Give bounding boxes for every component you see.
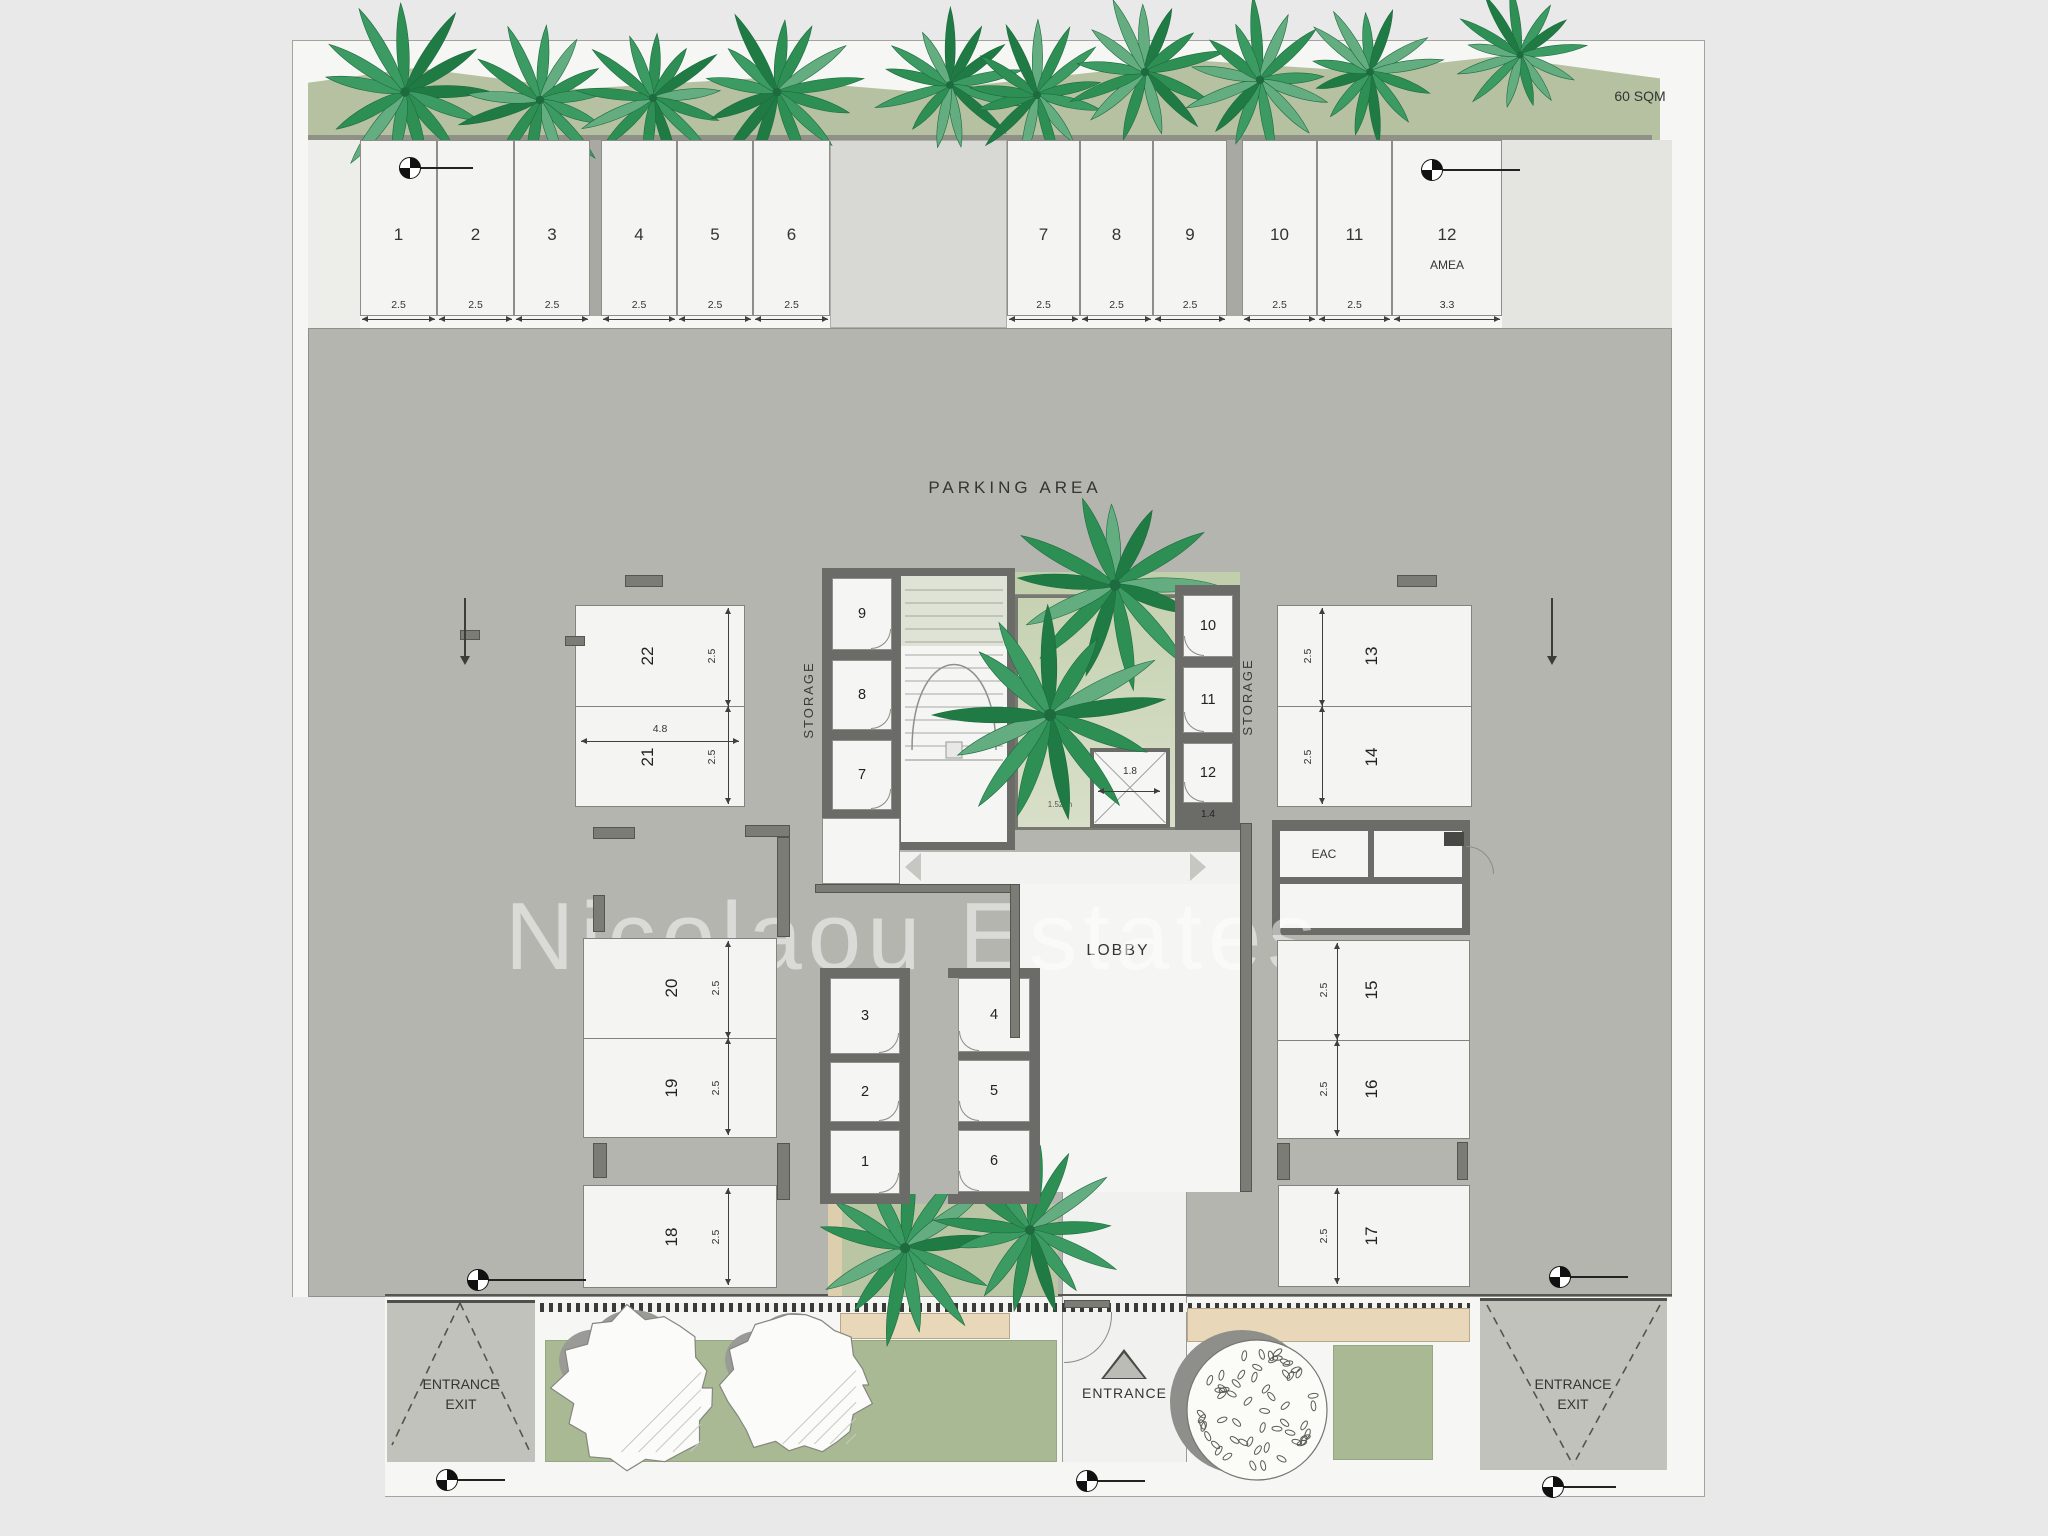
dimension-arrow-icon bbox=[725, 1279, 731, 1285]
parking-stall-3: 32.5 bbox=[514, 140, 590, 316]
dimension-arrow-icon bbox=[439, 316, 445, 322]
storage-dim: 1.4 bbox=[1183, 807, 1233, 821]
dimension-arrow-icon bbox=[1334, 1040, 1340, 1046]
elevator-dim: 1.8 bbox=[1110, 764, 1150, 778]
survey-marker-icon bbox=[399, 157, 421, 179]
stall-dim: 2.5 bbox=[678, 299, 752, 311]
dimension-line bbox=[581, 741, 739, 742]
parking-space-21: 21 bbox=[635, 744, 661, 770]
parking-stall-12: 12AMEA3.3 bbox=[1392, 140, 1502, 316]
stall-dim: 2.5 bbox=[602, 299, 676, 311]
stall-number: 12 bbox=[1393, 225, 1501, 245]
entrance-exit-left-label: ENTRANCE EXIT bbox=[392, 1372, 530, 1416]
dimension-arrow-icon bbox=[1319, 316, 1325, 322]
dimension-arrow-icon bbox=[1334, 943, 1340, 949]
tan-paving bbox=[840, 1313, 1010, 1339]
stall-dim: 2.5 bbox=[1154, 299, 1226, 311]
garden-bed-tan bbox=[828, 1204, 842, 1296]
parking-stall-5: 52.5 bbox=[677, 140, 753, 316]
dimension-arrow-icon bbox=[1145, 316, 1151, 322]
direction-arrow-icon bbox=[1547, 656, 1557, 665]
stall-row-pad bbox=[308, 140, 360, 328]
storage-number: 9 bbox=[832, 605, 892, 623]
dimension-arrow-icon bbox=[581, 738, 587, 744]
parking-stall-9: 92.5 bbox=[1153, 140, 1227, 316]
dimension-line bbox=[439, 319, 512, 320]
parking-space-14: 14 bbox=[1359, 744, 1385, 770]
parking-stall-6: 62.5 bbox=[753, 140, 830, 316]
space-dim: 2.5 bbox=[1313, 1223, 1335, 1249]
survey-marker-icon bbox=[1421, 159, 1443, 181]
dimension-line bbox=[1337, 1188, 1338, 1284]
survey-marker-icon bbox=[1076, 1470, 1098, 1492]
dimension-arrow-icon bbox=[725, 1038, 731, 1044]
dimension-arrow-icon bbox=[506, 316, 512, 322]
parking-space-18: 18 bbox=[659, 1224, 685, 1250]
survey-marker-leader bbox=[455, 1479, 505, 1481]
dimension-arrow-icon bbox=[725, 798, 731, 804]
space-dim: 2.5 bbox=[1313, 1076, 1335, 1102]
dimension-arrow-icon bbox=[1384, 316, 1390, 322]
area-label: 60 SQM bbox=[1578, 86, 1702, 106]
storage-number: 12 bbox=[1183, 764, 1233, 782]
entrance-label: ENTRANCE bbox=[1062, 1384, 1187, 1402]
stall-dim: 2.5 bbox=[361, 299, 436, 311]
eac-room: EAC bbox=[1280, 831, 1368, 877]
stall-number: 2 bbox=[438, 225, 513, 245]
wall-segment bbox=[1397, 575, 1437, 587]
storage-number: 3 bbox=[830, 1007, 900, 1025]
wall-segment bbox=[1240, 823, 1252, 1192]
stall-dim: 3.3 bbox=[1393, 299, 1501, 311]
stall-dim: 2.5 bbox=[1081, 299, 1152, 311]
dimension-line bbox=[362, 319, 435, 320]
dimension-arrow-icon bbox=[1319, 798, 1325, 804]
top-right-margin bbox=[1502, 140, 1672, 328]
parking-space-22: 22 bbox=[635, 643, 661, 669]
survey-marker-icon bbox=[1542, 1476, 1564, 1498]
wall-segment bbox=[777, 837, 790, 937]
survey-marker-leader bbox=[1561, 1486, 1616, 1488]
lawn bbox=[545, 1340, 1057, 1462]
dimension-arrow-icon bbox=[1334, 1188, 1340, 1194]
dimension-arrow-icon bbox=[1309, 316, 1315, 322]
stall-number: 5 bbox=[678, 225, 752, 245]
dimension-line bbox=[603, 319, 675, 320]
dimension-arrow-icon bbox=[1319, 608, 1325, 614]
space-dim: 2.5 bbox=[701, 744, 723, 770]
stall-dim: 2.5 bbox=[754, 299, 829, 311]
dimension-arrow-icon bbox=[1334, 1278, 1340, 1284]
space-dim: 2.5 bbox=[705, 975, 727, 1001]
survey-marker-leader bbox=[418, 167, 473, 169]
tan-paving bbox=[1187, 1308, 1470, 1342]
dimension-arrow-icon bbox=[1334, 1130, 1340, 1136]
stall-number: 4 bbox=[602, 225, 676, 245]
parking-space-13: 13 bbox=[1359, 643, 1385, 669]
dimension-arrow-icon bbox=[1394, 316, 1400, 322]
dimension-arrow-icon bbox=[1082, 316, 1088, 322]
storage-corridor bbox=[910, 978, 958, 1194]
dimension-arrow-icon bbox=[603, 316, 609, 322]
space-dim: 2.5 bbox=[1313, 977, 1335, 1003]
storage-number: 11 bbox=[1183, 691, 1233, 709]
stall-number: 11 bbox=[1318, 225, 1391, 245]
direction-arrow-icon bbox=[1551, 598, 1553, 656]
parking-stall-7: 72.5 bbox=[1007, 140, 1080, 316]
storage-number: 1 bbox=[830, 1153, 900, 1171]
survey-marker-leader bbox=[1568, 1276, 1628, 1278]
corridor-arrow-left-icon bbox=[905, 853, 921, 881]
survey-marker-leader bbox=[1095, 1480, 1145, 1482]
dimension-arrow-icon bbox=[725, 1129, 731, 1135]
space-dim: 2.5 bbox=[1297, 643, 1319, 669]
stall-number: 9 bbox=[1154, 225, 1226, 245]
block-width-dim: 4.8 bbox=[600, 722, 720, 736]
dimension-line bbox=[1319, 319, 1390, 320]
block-divider bbox=[1277, 706, 1472, 707]
survey-marker-icon bbox=[436, 1469, 458, 1491]
stall-tag: AMEA bbox=[1393, 257, 1501, 273]
block-divider bbox=[583, 1038, 777, 1039]
wall-segment bbox=[745, 825, 790, 837]
dimension-arrow-icon bbox=[1244, 316, 1250, 322]
dimension-arrow-icon bbox=[725, 1188, 731, 1194]
stall-group-pier bbox=[830, 140, 1007, 328]
stall-number: 3 bbox=[515, 225, 589, 245]
dimension-arrow-icon bbox=[669, 316, 675, 322]
wall-segment bbox=[777, 1143, 790, 1200]
wall-segment bbox=[565, 636, 585, 646]
wall-segment bbox=[593, 1143, 607, 1178]
stall-number: 6 bbox=[754, 225, 829, 245]
dimension-line bbox=[679, 319, 751, 320]
survey-marker-leader bbox=[486, 1279, 586, 1281]
dimension-arrow-icon bbox=[516, 316, 522, 322]
stall-number: 10 bbox=[1243, 225, 1316, 245]
stall-group-wall bbox=[590, 140, 601, 316]
dimension-arrow-icon bbox=[755, 316, 761, 322]
space-dim: 2.5 bbox=[705, 1075, 727, 1101]
entrance-exit-right-label: ENTRANCE EXIT bbox=[1493, 1372, 1653, 1416]
vestibule bbox=[822, 818, 900, 884]
stall-dim: 2.5 bbox=[1243, 299, 1316, 311]
parking-stall-4: 42.5 bbox=[601, 140, 677, 316]
dimension-line bbox=[1394, 319, 1500, 320]
stall-dim: 2.5 bbox=[1008, 299, 1079, 311]
dimension-line bbox=[516, 319, 588, 320]
shaft-dim-label: 1.52 m bbox=[1035, 798, 1085, 810]
wall-segment bbox=[1457, 1142, 1468, 1180]
dimension-arrow-icon bbox=[733, 738, 739, 744]
storage-number: 10 bbox=[1183, 617, 1233, 635]
storage-number: 5 bbox=[958, 1082, 1030, 1100]
block-divider bbox=[575, 706, 745, 707]
dimension-arrow-icon bbox=[1155, 316, 1161, 322]
direction-arrow-icon bbox=[460, 656, 470, 665]
stall-number: 8 bbox=[1081, 225, 1152, 245]
dimension-line bbox=[755, 319, 828, 320]
dimension-line bbox=[1098, 791, 1160, 792]
parking-space-20: 20 bbox=[659, 975, 685, 1001]
dimension-line bbox=[1082, 319, 1151, 320]
dimension-arrow-icon bbox=[1219, 316, 1225, 322]
lawn bbox=[1333, 1345, 1433, 1460]
dimension-arrow-icon bbox=[1098, 788, 1104, 794]
storage-label-left: STORAGE bbox=[798, 620, 818, 780]
space-dim: 2.5 bbox=[1297, 744, 1319, 770]
storage-number: 2 bbox=[830, 1083, 900, 1101]
storage-label-right: STORAGE bbox=[1237, 617, 1257, 777]
dimension-arrow-icon bbox=[745, 316, 751, 322]
dimension-arrow-icon bbox=[822, 316, 828, 322]
parking-area-label: PARKING AREA bbox=[875, 477, 1155, 499]
stair-tint bbox=[901, 576, 1007, 646]
stall-dim: 2.5 bbox=[1318, 299, 1391, 311]
wall-segment bbox=[593, 895, 605, 932]
dimension-arrow-icon bbox=[362, 316, 368, 322]
dimension-arrow-icon bbox=[1009, 316, 1015, 322]
dimension-arrow-icon bbox=[1154, 788, 1160, 794]
wall-segment bbox=[1064, 1300, 1110, 1308]
stall-dim: 2.5 bbox=[515, 299, 589, 311]
space-dim: 2.5 bbox=[705, 1224, 727, 1250]
wall-segment bbox=[1010, 884, 1020, 1038]
dimension-arrow-icon bbox=[429, 316, 435, 322]
dimension-line bbox=[728, 1188, 729, 1285]
direction-arrow-icon bbox=[464, 598, 466, 656]
entrance-triangle-icon bbox=[1104, 1353, 1144, 1378]
storage-number: 6 bbox=[958, 1152, 1030, 1170]
parking-stall-8: 82.5 bbox=[1080, 140, 1153, 316]
dimension-arrow-icon bbox=[679, 316, 685, 322]
storage-number: 7 bbox=[832, 766, 892, 784]
dimension-arrow-icon bbox=[725, 608, 731, 614]
parking-stall-11: 112.5 bbox=[1317, 140, 1392, 316]
boundary-notch bbox=[292, 1297, 385, 1497]
stall-group-wall bbox=[1227, 140, 1242, 316]
wall-segment bbox=[625, 575, 663, 587]
garden-bed bbox=[828, 1204, 1058, 1296]
survey-marker-icon bbox=[467, 1269, 489, 1291]
wall-segment bbox=[593, 827, 635, 839]
dimension-line bbox=[1009, 319, 1078, 320]
parking-space-19: 19 bbox=[659, 1075, 685, 1101]
dimension-arrow-icon bbox=[582, 316, 588, 322]
eac-detail bbox=[1444, 832, 1464, 846]
corridor-arrow-right-icon bbox=[1190, 853, 1206, 881]
dimension-arrow-icon bbox=[1494, 316, 1500, 322]
parking-stall-10: 102.5 bbox=[1242, 140, 1317, 316]
dimension-arrow-icon bbox=[725, 941, 731, 947]
storage-number: 8 bbox=[832, 686, 892, 704]
dimension-arrow-icon bbox=[1072, 316, 1078, 322]
wall-segment bbox=[460, 630, 480, 640]
site-plan: 60 SQM PARKING AREA 1.52 m 1.8 LOBBY EAC bbox=[0, 0, 2048, 1536]
parking-space-15: 15 bbox=[1359, 977, 1385, 1003]
wall-segment bbox=[1277, 1143, 1290, 1180]
dimension-line bbox=[1155, 319, 1225, 320]
stall-number: 1 bbox=[361, 225, 436, 245]
dimension-line bbox=[1244, 319, 1315, 320]
dimension-arrow-icon bbox=[1319, 706, 1325, 712]
space-dim: 2.5 bbox=[701, 643, 723, 669]
survey-marker-icon bbox=[1549, 1266, 1571, 1288]
stall-number: 7 bbox=[1008, 225, 1079, 245]
wall-segment bbox=[815, 884, 1015, 893]
parking-space-17: 17 bbox=[1359, 1223, 1385, 1249]
block-divider bbox=[1277, 1040, 1470, 1041]
dimension-arrow-icon bbox=[725, 706, 731, 712]
parking-space-16: 16 bbox=[1359, 1076, 1385, 1102]
stall-dim: 2.5 bbox=[438, 299, 513, 311]
survey-marker-leader bbox=[1440, 169, 1520, 171]
